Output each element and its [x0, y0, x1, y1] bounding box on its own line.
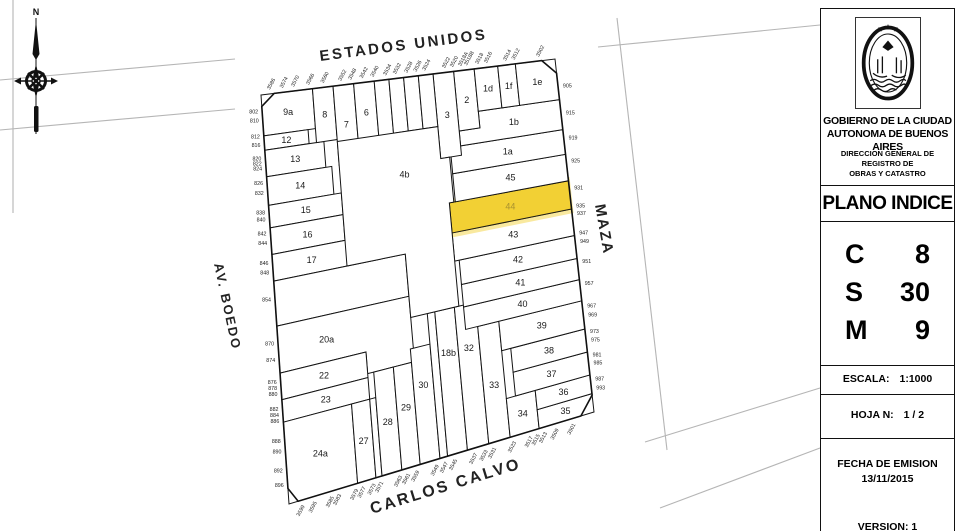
- parcel-label-12: 12: [281, 135, 291, 145]
- parcel-label-2: 2: [464, 95, 469, 105]
- address-number: 947: [579, 231, 588, 237]
- address-number: 935: [576, 203, 585, 209]
- address-number: 832: [255, 191, 264, 197]
- circunscripcion-row: C 8: [821, 239, 954, 270]
- address-number: 880: [269, 392, 278, 398]
- address-number: 3560: [320, 71, 331, 84]
- parcel-label-8: 8: [322, 109, 327, 119]
- address-number: 888: [272, 439, 281, 445]
- coat-of-arms-box: [855, 17, 921, 109]
- address-number: 915: [566, 111, 575, 117]
- address-number: 967: [587, 303, 596, 309]
- address-number: 3528: [404, 61, 415, 74]
- address-number: 3545: [448, 458, 459, 471]
- context-street-line: [598, 25, 820, 47]
- csm-value: 30: [900, 277, 930, 308]
- sheet-value: 1 / 2: [904, 409, 924, 421]
- street-label-av-boedo: AV. BOEDO: [211, 262, 244, 352]
- address-number: 896: [275, 483, 284, 489]
- parcel-label-38: 38: [544, 345, 554, 355]
- address-number: 812: [251, 135, 260, 141]
- address-number: 3566: [305, 73, 316, 86]
- parcel-label-7: 7: [344, 119, 349, 129]
- seccion-row: S 30: [821, 277, 954, 308]
- address-number: 3513: [538, 431, 549, 444]
- address-number: 3502: [535, 45, 546, 58]
- address-number: 937: [577, 211, 586, 217]
- address-number: 985: [594, 361, 603, 367]
- parcel-label-41: 41: [515, 277, 525, 287]
- street-label-maza: MAZA: [591, 203, 617, 257]
- context-street-line: [617, 18, 667, 450]
- parcel-label-6: 6: [364, 108, 369, 118]
- manzana-row: M 9: [821, 315, 954, 346]
- address-number: 957: [585, 281, 594, 287]
- address-number: 905: [563, 83, 572, 89]
- address-number: 884: [270, 413, 279, 419]
- parcel-label-43: 43: [508, 230, 518, 240]
- address-number: 3523: [507, 441, 518, 454]
- parcel-label-14: 14: [295, 181, 305, 191]
- parcel-label-1e: 1e: [532, 77, 542, 87]
- address-number: 890: [273, 450, 282, 456]
- parcel-label-1f: 1f: [505, 81, 513, 91]
- address-number: 846: [260, 261, 269, 267]
- version-label: VERSION: 1: [821, 521, 954, 531]
- address-number: 973: [590, 329, 599, 335]
- parcel-label-30: 30: [418, 380, 428, 390]
- address-number: 3586: [266, 78, 277, 91]
- parcel-label-3: 3: [445, 110, 450, 120]
- address-number: 3599: [296, 504, 307, 517]
- address-number: 3524: [422, 59, 433, 72]
- address-number: 3540: [370, 65, 381, 78]
- emission-date-label: FECHA DE EMISION: [821, 457, 954, 472]
- department-line2: OBRAS Y CATASTRO: [821, 169, 954, 179]
- address-number: 3595: [308, 501, 319, 514]
- parcel-label-44: 44: [505, 201, 515, 211]
- parcel-label-36: 36: [559, 387, 569, 397]
- scale-row: ESCALA: 1:1000: [821, 373, 954, 385]
- sheet-label: HOJA N:: [851, 409, 894, 421]
- address-number: 810: [250, 118, 259, 124]
- address-number: 3512: [511, 48, 522, 61]
- context-street-line: [660, 448, 820, 508]
- address-number: 969: [588, 313, 597, 319]
- address-number: 3577: [357, 486, 368, 499]
- address-number: 3574: [279, 76, 290, 89]
- parcel-label-13: 13: [290, 154, 300, 164]
- address-number: 949: [580, 239, 589, 245]
- address-number: 802: [249, 109, 258, 115]
- address-number: 878: [268, 386, 277, 392]
- address-number: 975: [591, 338, 600, 344]
- address-number: 3501: [567, 423, 578, 436]
- department-line1: DIRECCION GENERAL DE REGISTRO DE: [821, 149, 954, 169]
- address-number: 840: [257, 217, 266, 223]
- parcel-label-16: 16: [302, 229, 312, 239]
- address-number: 824: [253, 167, 262, 173]
- address-number: 3509: [550, 428, 561, 441]
- address-number: 951: [582, 259, 591, 265]
- parcel-label-34: 34: [518, 409, 528, 419]
- plano-indice-page: 9a12131415161720a222324a2728293018b32333…: [0, 0, 959, 531]
- address-number: 987: [595, 376, 604, 382]
- csm-value: 9: [915, 315, 930, 346]
- address-number: 848: [260, 271, 269, 277]
- parcel-label-40: 40: [518, 299, 528, 309]
- address-number: 3548: [347, 68, 358, 81]
- emission-date-block: FECHA DE EMISION 13/11/2015: [821, 457, 954, 487]
- address-number: 931: [574, 185, 583, 191]
- scale-label: ESCALA:: [843, 373, 890, 385]
- parcel-label-35: 35: [561, 406, 571, 416]
- org-name-line1: GOBIERNO DE LA CIUDAD: [821, 115, 954, 128]
- plan-title: PLANO INDICE: [821, 185, 954, 222]
- cadastral-map: 9a12131415161720a222324a2728293018b32333…: [0, 0, 959, 531]
- parcel-label-1a: 1a: [503, 146, 513, 156]
- emission-date-value: 13/11/2015: [821, 472, 954, 487]
- address-number: 816: [252, 143, 261, 149]
- address-number: 3559: [410, 470, 421, 483]
- address-number: 874: [266, 358, 275, 364]
- address-number: 844: [258, 241, 267, 247]
- parcel-label-15: 15: [301, 205, 311, 215]
- parcel-label-27: 27: [359, 436, 369, 446]
- address-number: 3534: [382, 63, 393, 76]
- parcel-label-22: 22: [319, 371, 329, 381]
- address-number: 842: [258, 232, 267, 238]
- compass-rose-icon: N: [4, 2, 74, 147]
- address-number: 892: [274, 468, 283, 474]
- address-number: 3552: [337, 69, 348, 82]
- parcel-label-24a: 24a: [313, 448, 328, 458]
- parcel-label-29: 29: [401, 402, 411, 412]
- address-number: 3516: [483, 51, 494, 64]
- address-number: 838: [256, 210, 265, 216]
- context-street-line: [645, 388, 820, 442]
- sheet-row: HOJA N: 1 / 2: [821, 409, 954, 421]
- csm-key: M: [845, 315, 868, 346]
- coat-of-arms-icon: [859, 21, 917, 105]
- parcel-label-4b: 4b: [399, 169, 409, 179]
- scale-value: 1:1000: [899, 373, 932, 385]
- parcel-label-42: 42: [513, 255, 523, 265]
- address-number: 981: [593, 352, 602, 358]
- parcel-label-23: 23: [321, 395, 331, 405]
- address-number: 919: [569, 135, 578, 141]
- compass-north-label: N: [33, 7, 40, 17]
- address-number: 870: [265, 342, 274, 348]
- csm-key: S: [845, 277, 863, 308]
- parcel-label-39: 39: [537, 320, 547, 330]
- address-number: 3570: [290, 75, 301, 88]
- parcel-label-9a: 9a: [283, 107, 293, 117]
- parcel-label-1b: 1b: [509, 117, 519, 127]
- parcel-label-37: 37: [546, 369, 556, 379]
- address-number: 993: [596, 385, 605, 391]
- parcel-label-28: 28: [383, 417, 393, 427]
- csm-value: 8: [915, 239, 930, 270]
- address-number: 886: [270, 419, 279, 425]
- parcel-label-18b: 18b: [441, 348, 456, 358]
- address-number: 3571: [374, 481, 385, 494]
- parcel-label-33: 33: [489, 380, 499, 390]
- title-block-panel: GOBIERNO DE LA CIUDAD AUTONOMA DE BUENOS…: [820, 8, 955, 531]
- address-number: 826: [254, 181, 263, 187]
- address-number: 3537: [468, 452, 479, 465]
- address-number: 3583: [332, 493, 343, 506]
- parcel-label-1d: 1d: [483, 84, 493, 94]
- address-number: 854: [262, 298, 271, 304]
- address-number: 3532: [392, 62, 403, 75]
- parcel-label-20a: 20a: [319, 334, 334, 344]
- address-number: 925: [571, 159, 580, 165]
- parcel-label-45: 45: [505, 173, 515, 183]
- parcel-label-17: 17: [307, 255, 317, 265]
- parcel-label-32: 32: [464, 343, 474, 353]
- address-number: 3542: [359, 66, 370, 79]
- csm-key: C: [845, 239, 865, 270]
- address-number: 3531: [487, 447, 498, 460]
